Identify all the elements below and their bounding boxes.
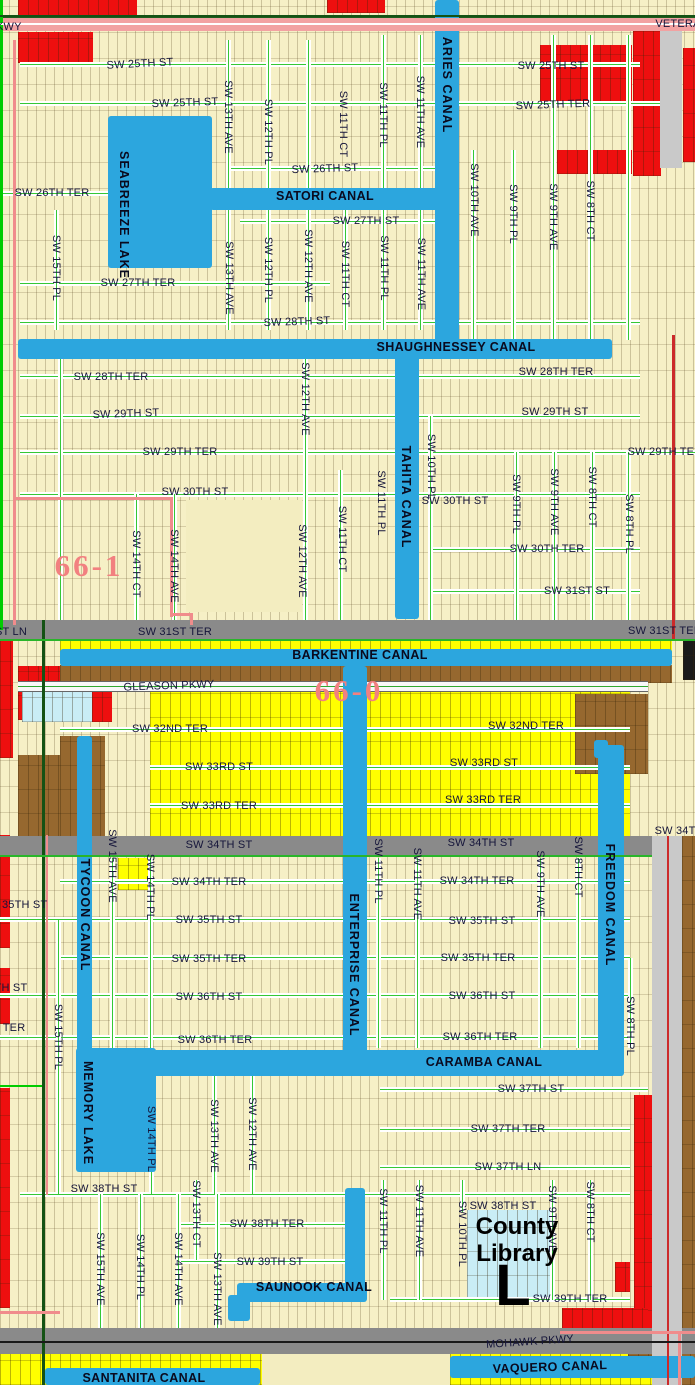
- sw-11th-pl-label: SW 11TH PL: [372, 838, 384, 903]
- tycoon-canal-label: TYCOON CANAL: [78, 859, 92, 972]
- district-66-1-label: 66-1: [55, 548, 124, 584]
- sw-29th-st-label: SW 29TH ST: [92, 407, 159, 421]
- sw-12th-pl-label: SW 12TH PL: [262, 99, 274, 165]
- sw-25th-st-label: SW 25TH ST: [518, 60, 585, 72]
- sw-36th-st-label: SW 36TH ST: [0, 982, 27, 994]
- sw-28th-st-label: SW 28TH ST: [263, 315, 330, 329]
- sw-12th-ave-label: SW 12TH AVE: [299, 362, 311, 436]
- sw-36th-st-label: SW 36TH ST: [449, 990, 516, 1002]
- sw-38th-st-label: SW 38TH ST: [71, 1183, 138, 1195]
- sw-34th-ter-label: SW 34TH TER: [172, 876, 247, 888]
- sw-29th-ter-label: SW 29TH TER: [143, 446, 218, 458]
- sw-13th-ave-label: SW 13TH AVE: [222, 80, 234, 154]
- sw-36th-ter-label: SW 36TH TER: [443, 1031, 518, 1043]
- sw-30th-ter-label: SW 30TH TER: [510, 543, 585, 555]
- sw-11th-ct-label: SW 11TH CT: [336, 506, 348, 573]
- sw-14th-pl-label: SW 14TH PL: [144, 854, 156, 920]
- barkentine-canal-label: BARKENTINE CANAL: [292, 648, 428, 662]
- boundary-line: [0, 1085, 42, 1087]
- sw-26th-st-label: SW 26TH ST: [291, 162, 358, 176]
- freedom-canal-label: FREEDOM CANAL: [603, 844, 617, 967]
- sw-14th-pl-label: SW 14TH PL: [134, 1234, 146, 1300]
- red-column-library: [634, 1095, 653, 1335]
- map-canvas[interactable]: SEABREEZE LAKESATORI CANALARIES CANALSHA…: [0, 0, 695, 1385]
- saunook-canal-vertical: [345, 1188, 365, 1288]
- sw-39th-ter-label: SW 39TH TER: [533, 1293, 608, 1305]
- sw-32nd-ter-label: SW 32ND TER: [488, 720, 564, 732]
- boundary-line: [170, 613, 192, 616]
- sw-37th-ter-label: SW 37TH TER: [471, 1123, 546, 1135]
- library-marker-L: L: [495, 1257, 530, 1315]
- sw-13th-ave-label: SW 13TH AVE: [211, 1252, 223, 1326]
- sw-14th-pl-label: SW 14TH PL: [145, 1106, 157, 1172]
- satori-canal-label: SATORI CANAL: [276, 189, 374, 203]
- sw-11th-ct-label: SW 11TH CT: [337, 91, 349, 158]
- red-edge-left-3: [0, 1088, 10, 1308]
- sw-31st-ter-road: [0, 620, 695, 641]
- sw-11th-pl-label: SW 11TH PL: [377, 1188, 389, 1253]
- street-vertical: [626, 35, 631, 340]
- street-horizontal: [0, 993, 630, 998]
- seabreeze-lake-label: SEABREEZE LAKE: [117, 151, 131, 279]
- brown-column-far-right: [682, 836, 695, 1385]
- sw-35th-st-label: SW 35TH ST: [449, 915, 516, 927]
- sw-13th-ave-label: SW 13TH AVE: [208, 1099, 220, 1173]
- sw-36th-ter-label: SW 36TH TER: [178, 1034, 253, 1046]
- brown-block-left: [18, 755, 60, 838]
- sw-33rd-ter-label: SW 33RD TER: [181, 800, 257, 812]
- street-vertical: [511, 150, 516, 340]
- red-bit-39th: [615, 1262, 630, 1292]
- boundary-line: [46, 835, 48, 1195]
- sw-11th-ave-label: SW 11TH AVE: [415, 238, 427, 311]
- sw-31st-ter-label: SW 31ST TER: [138, 626, 212, 638]
- red-edge-topright: [683, 48, 695, 162]
- sw-30th-st-label: SW 30TH ST: [162, 486, 229, 498]
- boundary-line: [13, 497, 173, 500]
- boundary-line: [0, 0, 3, 630]
- sw-25th-st-label: SW 25TH ST: [151, 96, 218, 110]
- sw-33rd-ter-label: SW 33RD TER: [445, 794, 521, 806]
- caramba-canal-label: CARAMBA CANAL: [426, 1055, 543, 1069]
- sw-35th-ter-label: SW 35TH TER: [172, 953, 247, 965]
- sw-11th-ave-label: SW 11TH AVE: [411, 848, 423, 921]
- boundary-line: [0, 15, 695, 17]
- boundary-line: [672, 335, 675, 639]
- sw-10th-ave-label: SW 10TH AVE: [468, 163, 480, 237]
- sw-12th-ave-label: SW 12TH AVE: [296, 524, 308, 598]
- boundary-line: [0, 23, 695, 25]
- veterans-pkwy-label: VETERANS PKWY: [0, 21, 22, 33]
- sw-14th-ave-label: SW 14TH AVE: [172, 1232, 184, 1306]
- sw-34th-ter-label: SW 34TH TER: [440, 875, 515, 887]
- sw-31st-ln-label: SW 31ST LN: [0, 626, 27, 638]
- sw-36th-st-label: SW 36TH ST: [176, 991, 243, 1003]
- sw-38th-ter-label: SW 38TH TER: [230, 1218, 305, 1230]
- sw-29th-st-label: SW 29TH ST: [522, 406, 589, 418]
- red-bit-cyan: [92, 692, 112, 722]
- red-zone-topmid: [327, 0, 385, 13]
- sw-31st-st-label: SW 31ST ST: [544, 585, 610, 597]
- sw-11th-pl-label: SW 11TH PL: [375, 470, 387, 535]
- sw-35th-ter-label: SW 35TH TER: [441, 952, 516, 964]
- sw-26th-ter-label: SW 26TH TER: [15, 187, 90, 199]
- sw-35th-st-label: SW 35TH ST: [0, 899, 47, 911]
- saunook-canal-label: SAUNOOK CANAL: [256, 1280, 372, 1294]
- sw-9th-ave-label: SW 9TH AVE: [534, 850, 546, 917]
- sw-28th-ter-label: SW 28TH TER: [519, 366, 594, 378]
- sw-8th-ct-label: SW 8TH CT: [586, 466, 598, 527]
- sw-9th-pl-label: SW 9TH PL: [510, 474, 522, 534]
- sw-13th-ct-label: SW 13TH CT: [190, 1180, 202, 1247]
- street-horizontal: [0, 1035, 630, 1040]
- sw-10th-pl-label: SW 10TH PL: [456, 1201, 468, 1267]
- sw-36th-ter-label: SW 36TH TER: [0, 1022, 25, 1034]
- sw-27th-st-label: SW 27TH ST: [333, 215, 400, 227]
- santanita-canal-label: SANTANITA CANAL: [82, 1371, 205, 1385]
- boundary-line: [0, 1311, 60, 1314]
- sw-31st-ter-label: SW 31ST TER: [628, 625, 695, 637]
- sw-9th-pl-label: SW 9TH PL: [507, 184, 519, 244]
- sw-11th-pl-label: SW 11TH PL: [377, 82, 389, 147]
- sw-29th-ter-label: SW 29TH TER: [628, 446, 695, 458]
- sw-8th-ct-label: SW 8TH CT: [584, 1181, 596, 1242]
- sw-34th-st-road: [0, 836, 652, 857]
- sw-33rd-st-label: SW 33RD ST: [450, 757, 518, 769]
- sw-14th-ct-label: SW 14TH CT: [130, 530, 142, 597]
- sw-35th-st-label: SW 35TH ST: [176, 914, 243, 926]
- sw-15th-pl-label: SW 15TH PL: [50, 235, 62, 301]
- dark-block-barkentine: [683, 638, 695, 680]
- red-edge-31st: [0, 638, 13, 758]
- sw-25th-ter-label: SW 25TH TER: [515, 98, 590, 113]
- sw-15th-ave-label: SW 15TH AVE: [94, 1232, 106, 1306]
- red-zone-topleft-below: [18, 32, 93, 63]
- enterprise-canal-label: ENTERPRISE CANAL: [347, 893, 361, 1036]
- sw-38th-st-label: SW 38TH ST: [470, 1200, 537, 1212]
- shaughnessey-canal-label: SHAUGHNESSEY CANAL: [376, 340, 535, 354]
- sw-8th-ct-label: SW 8TH CT: [572, 836, 584, 897]
- red-zone-25th-ter: [557, 150, 632, 174]
- tahita-canal-label: TAHITA CANAL: [399, 446, 413, 549]
- sw-34th-st-label: SW 34TH ST: [448, 837, 515, 849]
- sw-15th-ave-label: SW 15TH AVE: [106, 829, 118, 903]
- sw-12th-ave-label: SW 12TH AVE: [246, 1097, 258, 1171]
- aries-canal-label: ARIES CANAL: [440, 37, 454, 133]
- sw-33rd-st-label: SW 33RD ST: [185, 761, 253, 773]
- sw-15th-pl-label: SW 15TH PL: [52, 1004, 64, 1070]
- sw-11th-ct-label: SW 11TH CT: [339, 241, 351, 308]
- boundary-line: [190, 613, 193, 625]
- sw-11th-ave-label: SW 11TH AVE: [414, 76, 426, 149]
- boundary-line: [0, 1341, 695, 1343]
- sw-14th-ave-label: SW 14TH AVE: [168, 529, 180, 603]
- sw-10th-pl-label: SW 10TH PL: [425, 434, 437, 500]
- sw-32nd-ter-label: SW 32ND TER: [132, 723, 208, 735]
- sw-12th-pl-label: SW 12TH PL: [262, 237, 274, 303]
- boundary-line: [0, 855, 652, 857]
- memory-lake-label: MEMORY LAKE: [81, 1061, 95, 1165]
- saunook-canal-elbow: [228, 1295, 250, 1321]
- sw-9th-ave-label: SW 9TH AVE: [547, 183, 559, 250]
- sw-28th-ter-label: SW 28TH TER: [74, 371, 149, 383]
- sw-39th-st-label: SW 39TH ST: [237, 1256, 304, 1268]
- sw-8th-pl-label: SW 8TH PL: [624, 996, 636, 1056]
- district-66-0-label: 66-0: [315, 673, 384, 709]
- sw-11th-ave-label: SW 11TH AVE: [413, 1185, 425, 1258]
- sw-8th-pl-label: SW 8TH PL: [623, 494, 635, 554]
- sw-25th-st-label: SW 25TH ST: [106, 56, 173, 71]
- vacant-block-66-1: [186, 500, 302, 612]
- cream-strip-south: [262, 1352, 450, 1385]
- road-vertical-topright: [660, 18, 682, 168]
- veterans-pkwy-label: VETERANS PKWY: [655, 18, 695, 30]
- boundary-line: [42, 620, 45, 1385]
- sw-11th-pl-label: SW 11TH PL: [378, 235, 390, 300]
- boundary-line: [560, 1331, 695, 1334]
- sw-37th-st-label: SW 37TH ST: [498, 1083, 565, 1095]
- sw-37th-ln-label: SW 37TH LN: [475, 1161, 542, 1173]
- sw-27th-ter-label: SW 27TH TER: [101, 277, 176, 289]
- street-horizontal: [0, 917, 630, 922]
- sw-34th-st-label: SW 34TH ST: [186, 839, 253, 851]
- sw-9th-ave-label: SW 9TH AVE: [548, 468, 560, 535]
- pond-freedom: [594, 740, 608, 758]
- cyan-block-gleason: [22, 692, 92, 722]
- boundary-line: [0, 639, 695, 641]
- sw-34th-st-label: SW 34TH ST: [655, 825, 695, 837]
- sw-13th-ave-label: SW 13TH AVE: [223, 241, 235, 315]
- sw-8th-ct-label: SW 8TH CT: [584, 180, 596, 241]
- boundary-line: [667, 836, 669, 1385]
- sw-12th-ave-label: SW 12TH AVE: [302, 229, 314, 303]
- boundary-line: [13, 40, 16, 625]
